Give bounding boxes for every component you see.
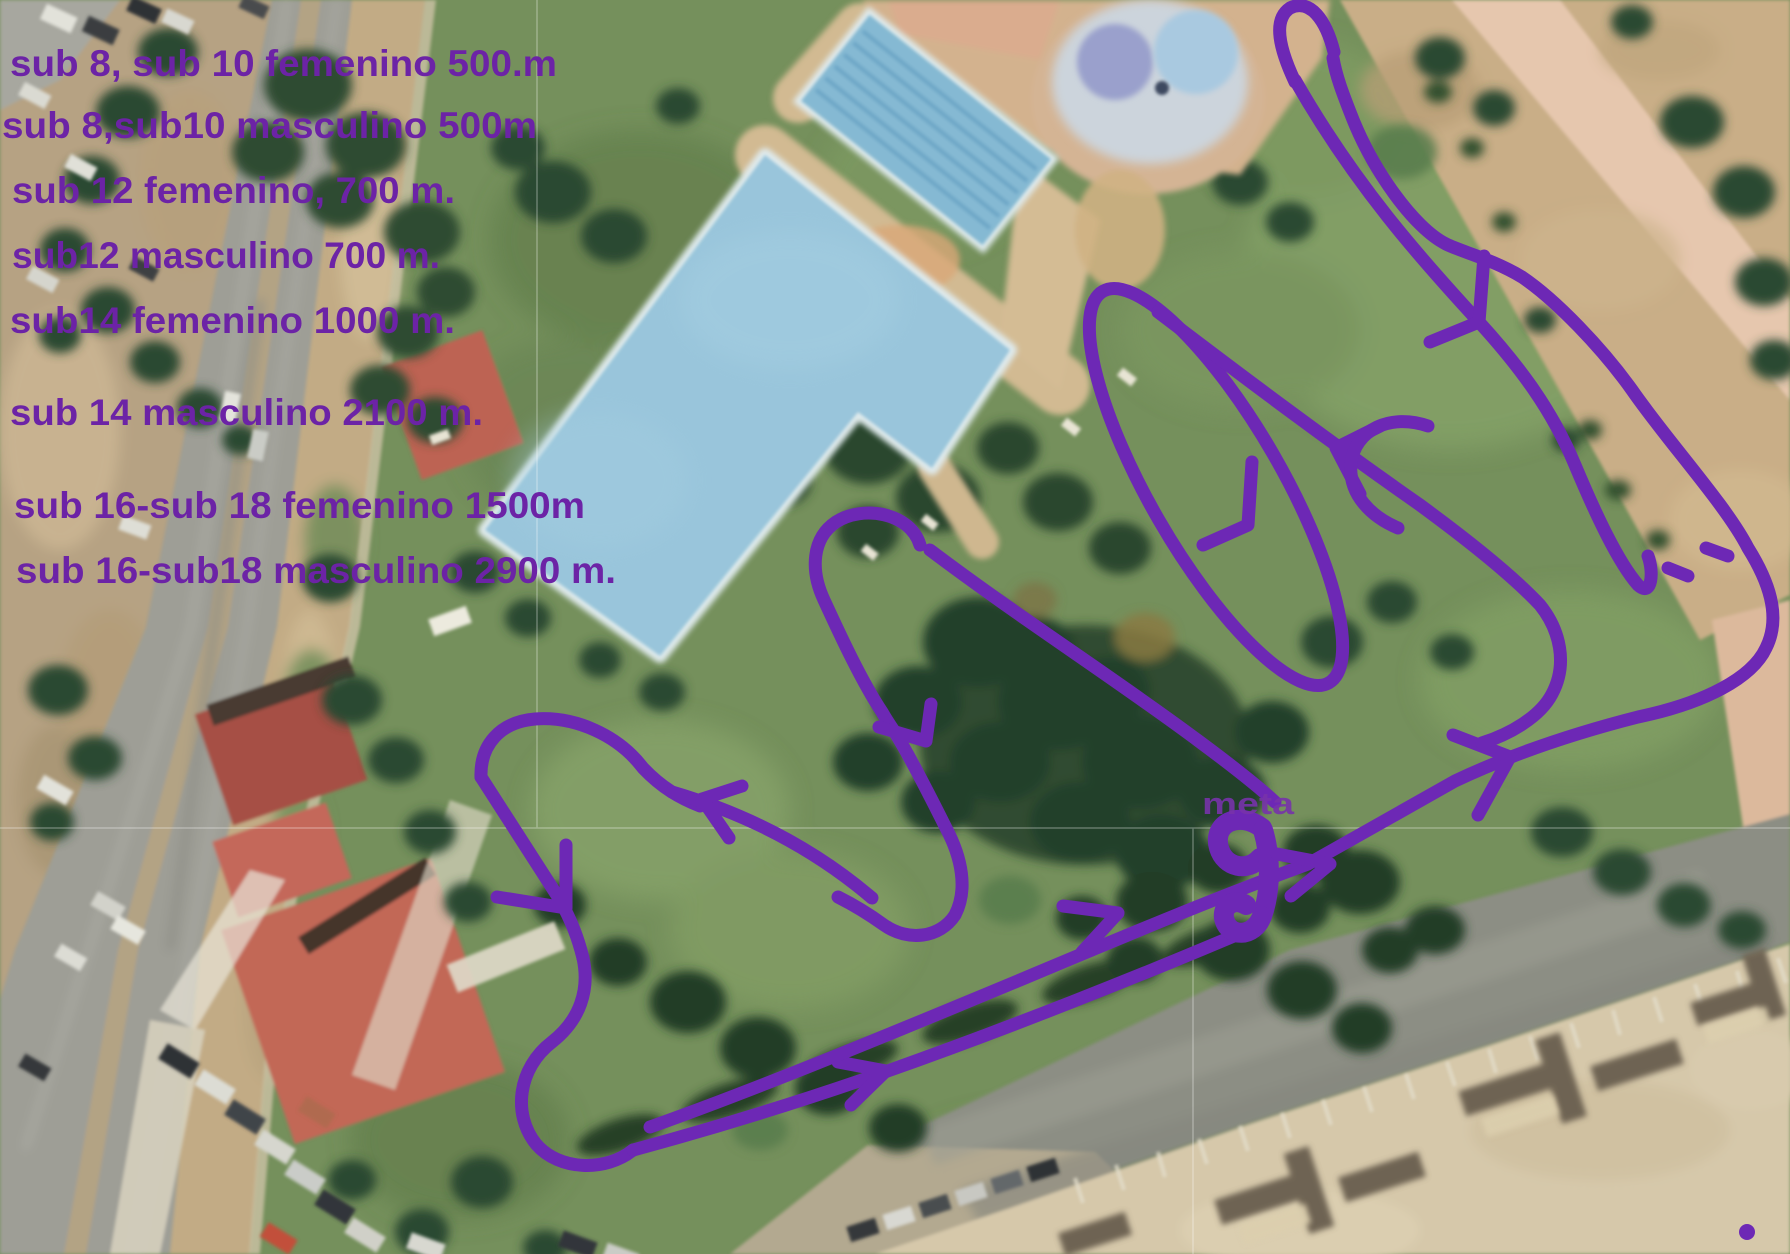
- svg-text:sub 14 masculino 2100 m.: sub 14 masculino 2100 m.: [10, 392, 483, 433]
- svg-text:sub 12 femenino, 700 m.: sub 12 femenino, 700 m.: [12, 170, 455, 211]
- svg-text:meta: meta: [1202, 786, 1295, 821]
- svg-text:sub 8,sub10 masculino 500m: sub 8,sub10 masculino 500m: [2, 105, 537, 146]
- svg-text:sub 16-sub18 masculino 2900 m.: sub 16-sub18 masculino 2900 m.: [16, 550, 616, 591]
- svg-text:sub 16-sub 18 femenino 1500m: sub 16-sub 18 femenino 1500m: [14, 485, 585, 526]
- svg-text:sub14 femenino 1000 m.: sub14 femenino 1000 m.: [10, 300, 455, 341]
- svg-text:sub 8, sub 10 femenino 500.m: sub 8, sub 10 femenino 500.m: [10, 43, 557, 84]
- svg-text:sub12 masculino 700 m.: sub12 masculino 700 m.: [12, 235, 440, 276]
